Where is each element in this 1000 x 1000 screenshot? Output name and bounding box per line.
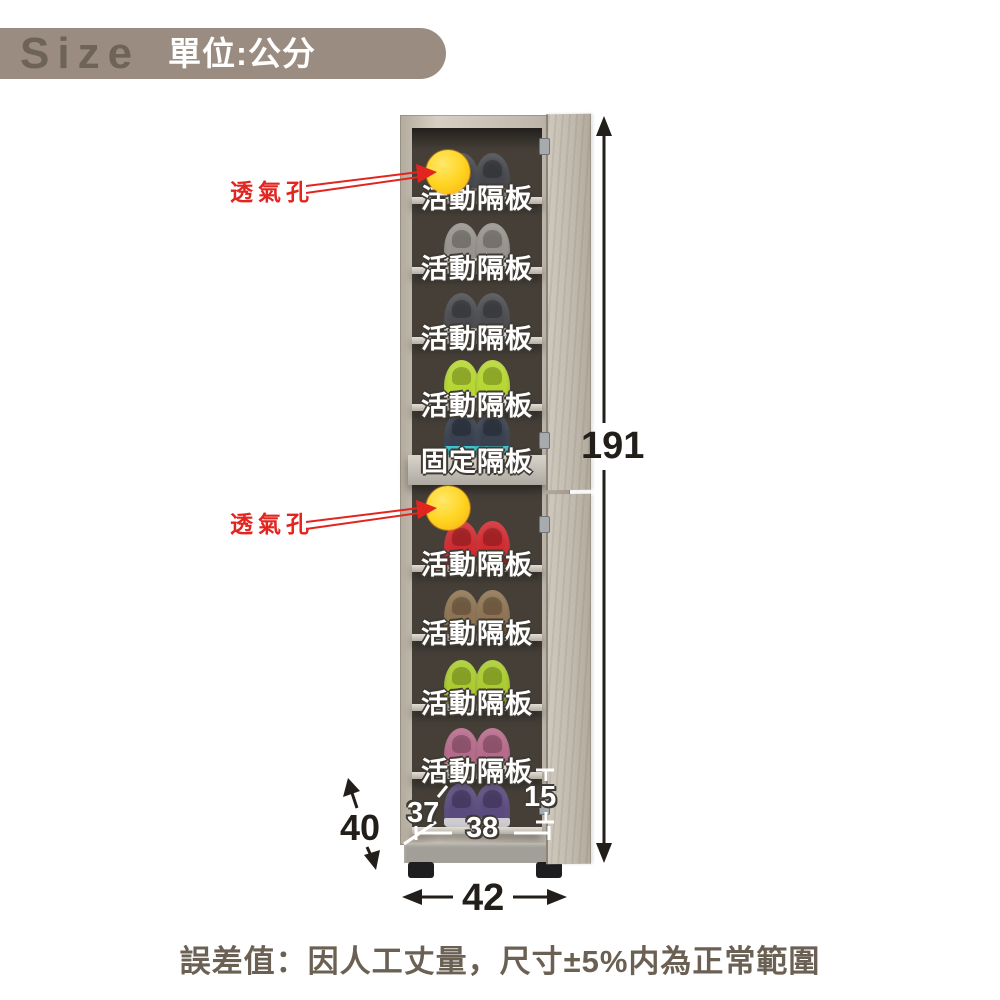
vent-callout-bottom: 透氣孔 <box>230 505 314 539</box>
depth-value: 40 <box>340 810 380 846</box>
cabinet-foot-right <box>536 862 562 878</box>
size-title: Size <box>20 32 140 76</box>
vent-hole-icon <box>426 150 470 194</box>
shelf-label: 活動隔板 <box>412 618 542 650</box>
inner-width-value: 38 <box>466 814 498 843</box>
tolerance-footnote: 誤差值：因人工丈量，尺寸±5%内為正常範圍 <box>0 936 1000 981</box>
size-banner: Size 單位:公分 <box>0 28 446 79</box>
shelf-label: 活動隔板 <box>412 688 542 720</box>
inner-depth-value: 37 <box>407 799 439 828</box>
shelf-label: 活動隔板 <box>412 390 542 422</box>
cabinet-foot-left <box>408 862 434 878</box>
unit-label: 單位:公分 <box>168 37 316 70</box>
fixed-shelf-label: 固定隔板 <box>412 446 542 478</box>
width-value: 42 <box>462 879 504 917</box>
hinge-icon <box>539 516 550 533</box>
cabinet-base <box>404 843 568 863</box>
shelf-label: 活動隔板 <box>412 183 542 215</box>
shelf-label: 活動隔板 <box>412 549 542 581</box>
shelf-label: 活動隔板 <box>412 323 542 355</box>
shelf-label: 活動隔板 <box>412 253 542 285</box>
shelf-label: 活動隔板 <box>412 756 542 788</box>
bottom-clearance-value: 15 <box>524 783 556 812</box>
hinge-icon <box>539 138 550 155</box>
vent-hole-icon <box>426 486 470 530</box>
height-dimension-arrow <box>596 116 612 863</box>
height-value: 191 <box>581 427 644 465</box>
vent-callout-top: 透氣孔 <box>230 173 314 207</box>
